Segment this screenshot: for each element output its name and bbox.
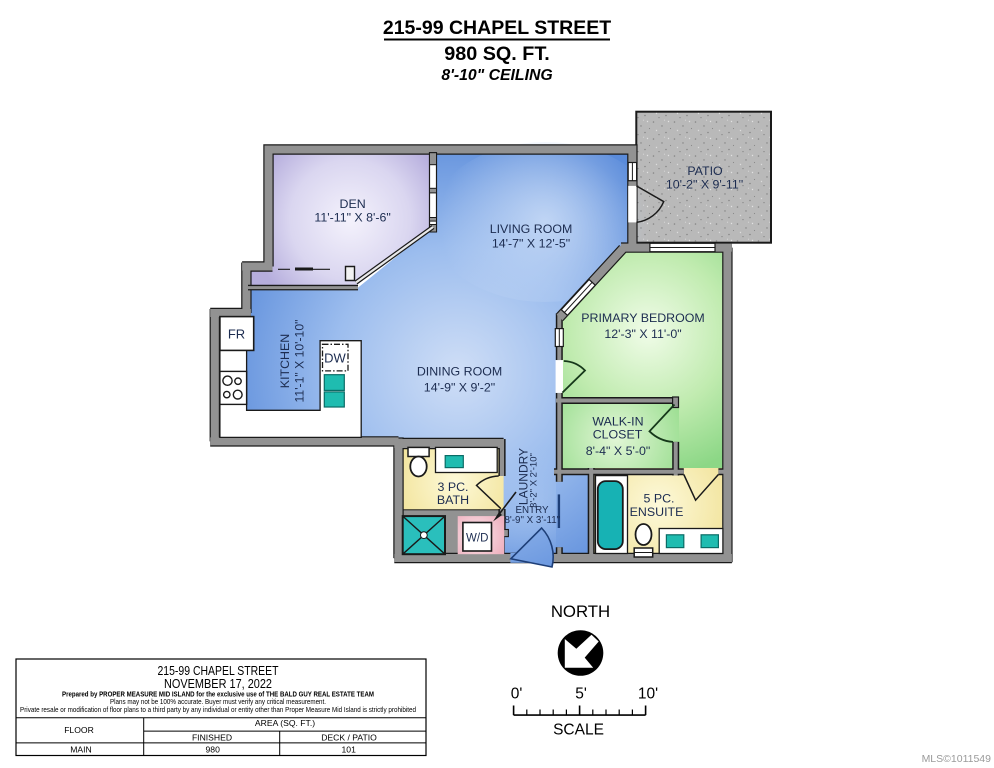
svg-text:215-99 CHAPEL STREET: 215-99 CHAPEL STREET (158, 664, 279, 678)
svg-text:CLOSET: CLOSET (593, 428, 643, 442)
svg-text:WALK-IN: WALK-IN (592, 415, 643, 429)
svg-text:8'-10" CEILING: 8'-10" CEILING (441, 67, 552, 84)
svg-text:101: 101 (342, 745, 357, 755)
svg-text:10'-2" X 9'-11": 10'-2" X 9'-11" (666, 178, 743, 192)
svg-text:FR: FR (228, 327, 245, 342)
svg-text:8'-9" X 3'-11": 8'-9" X 3'-11" (504, 515, 560, 526)
svg-text:KITCHEN: KITCHEN (278, 334, 292, 388)
svg-text:8'-4" X 5'-0": 8'-4" X 5'-0" (586, 444, 651, 458)
svg-text:DEN: DEN (340, 197, 366, 211)
svg-text:MAIN: MAIN (70, 745, 91, 755)
svg-text:0': 0' (511, 686, 523, 703)
svg-text:MLS©1011549: MLS©1011549 (922, 753, 992, 765)
svg-text:12'-3" X 11'-0": 12'-3" X 11'-0" (604, 327, 681, 341)
svg-text:PATIO: PATIO (687, 164, 723, 178)
svg-text:DINING ROOM: DINING ROOM (417, 365, 502, 379)
svg-text:FLOOR: FLOOR (64, 725, 94, 735)
svg-text:5 PC.: 5 PC. (644, 492, 675, 506)
svg-text:FINISHED: FINISHED (192, 733, 232, 743)
svg-text:NORTH: NORTH (551, 602, 610, 621)
svg-text:Private resale or modificatio: Private resale or modification of floor … (20, 706, 416, 714)
svg-text:5': 5' (575, 686, 587, 703)
svg-text:10': 10' (638, 686, 658, 703)
svg-text:3 PC.: 3 PC. (438, 480, 469, 494)
svg-text:14'-7" X 12'-5": 14'-7" X 12'-5" (492, 237, 570, 251)
svg-text:ENSUITE: ENSUITE (630, 505, 684, 519)
svg-text:LIVING ROOM: LIVING ROOM (490, 222, 573, 236)
svg-text:3'-2" X 2'-10": 3'-2" X 2'-10" (529, 453, 540, 508)
svg-text:DECK / PATIO: DECK / PATIO (321, 733, 377, 743)
svg-text:215-99 CHAPEL STREET: 215-99 CHAPEL STREET (383, 17, 611, 39)
svg-text:DW: DW (324, 351, 346, 366)
svg-text:14'-9" X 9'-2": 14'-9" X 9'-2" (424, 381, 495, 395)
svg-text:AREA (SQ. FT.): AREA (SQ. FT.) (255, 718, 315, 728)
svg-text:11'-1" X 10'-10": 11'-1" X 10'-10" (293, 320, 307, 403)
svg-text:W/D: W/D (466, 533, 488, 545)
svg-text:980 SQ. FT.: 980 SQ. FT. (444, 43, 550, 65)
svg-text:980: 980 (206, 745, 221, 755)
svg-text:BATH: BATH (437, 493, 469, 507)
svg-text:Plans may not be 100% accurate: Plans may not be 100% accurate. Buyer mu… (110, 697, 326, 706)
svg-text:PRIMARY BEDROOM: PRIMARY BEDROOM (581, 311, 704, 325)
svg-text:SCALE: SCALE (553, 722, 604, 739)
svg-text:11'-11" X 8'-6": 11'-11" X 8'-6" (314, 211, 390, 225)
